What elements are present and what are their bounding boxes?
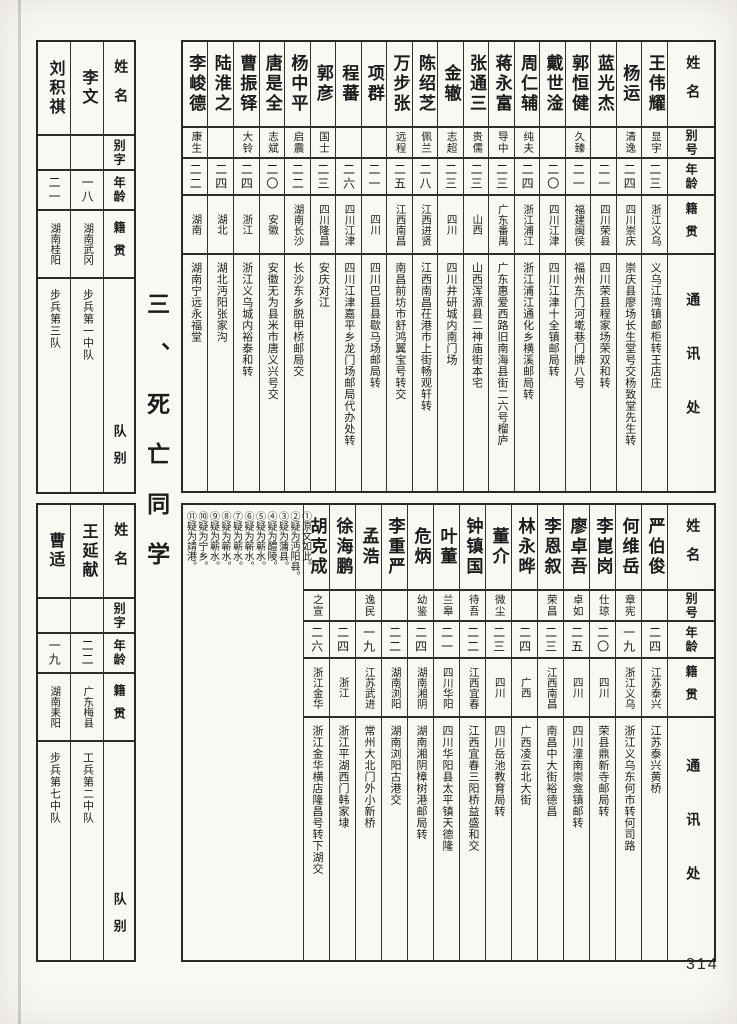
address-cell: 广东惠爱西路旧南海县街二六号榴庐 (489, 255, 514, 491)
age-cell: 二四 (208, 159, 233, 196)
name-cell: 刘积祺 (38, 42, 70, 136)
age-cell-text: 二五 (569, 626, 583, 654)
alias-cell-text: 启震 (291, 131, 303, 154)
age-cell-text: 二四 (239, 163, 253, 191)
age-cell: 二二 (71, 634, 103, 674)
alias-cell-text: 兰皋 (440, 594, 452, 617)
origin-cell: 广西 (512, 659, 537, 718)
header-name-text: 姓名 (111, 59, 128, 117)
footnote: ⑦疑为蕲水。 (230, 511, 241, 643)
age-cell-text: 二四 (517, 626, 531, 654)
name-cell-text: 何维岳 (618, 517, 638, 577)
name-cell: 郭恒健 (566, 42, 591, 128)
name-cell-text: 李峻德 (185, 54, 205, 114)
name-cell: 杨运 (617, 42, 642, 128)
name-cell: 蓝光杰 (591, 42, 616, 128)
person-column: 林永晔二四广西广西凌云北大街 (511, 505, 537, 960)
age-cell: 二〇 (260, 159, 285, 196)
address-cell: 安徽无为县米市唐义兴号交 (260, 255, 285, 491)
alias-cell (38, 136, 70, 171)
address-cell: 长沙东乡脱甲桥邮局交 (285, 255, 310, 491)
alias-cell-text: 章宪 (622, 594, 634, 617)
main-roster-table-top: 姓名别号年龄籍贯通讯处王伟耀显宇二三浙江义乌义乌江湾镇邮柜转王店庄杨运清逸二四四… (181, 40, 716, 493)
origin-cell-text: 江西进贤 (419, 204, 431, 246)
address-cell-text: 四川荣县程家场荣双和转 (597, 262, 610, 389)
name-cell: 胡克成 (304, 505, 329, 591)
age-cell: 二一 (591, 159, 616, 196)
header-column: 姓名别字年龄籍贯队别 (103, 42, 134, 492)
alias-cell (540, 128, 565, 159)
name-cell: 王延献 (71, 505, 103, 599)
origin-cell: 广东梅县 (71, 674, 103, 742)
page-number: 314 (686, 956, 719, 974)
alias-cell (591, 128, 616, 159)
alias-cell-text: 康生 (189, 131, 201, 154)
alias-cell-text: 之宣 (310, 594, 322, 617)
address-cell-text: 湖北沔阳张家沟 (214, 262, 227, 343)
alias-cell-text: 待吾 (466, 594, 478, 617)
address-cell-text: 崇庆县廖场长生堂号交杨致堂先生转 (623, 262, 636, 446)
name-cell: 蒋永富 (489, 42, 514, 128)
unit-cell-text: 步兵第七中队 (48, 752, 61, 824)
alias-cell: 章宪 (616, 591, 641, 622)
person-column: 叶董兰皋二一四川华阳四川华阳县太平镇天德隆 (433, 505, 459, 960)
name-cell-text: 万步张 (389, 54, 409, 114)
address-cell: 四川岳池教育局转 (486, 718, 511, 960)
name-cell: 陆淮之 (208, 42, 233, 128)
age-cell: 二三 (486, 622, 511, 659)
age-cell-text: 二二 (387, 626, 401, 654)
origin-cell-text: 山西 (470, 214, 482, 235)
address-cell-text: 四川江津嘉平乡龙门场邮局代办处转 (342, 262, 355, 446)
address-cell-text: 义乌江湾镇邮柜转王店庄 (648, 262, 661, 389)
person-column: 蓝光杰二一四川荣县四川荣县程家场荣双和转 (590, 42, 616, 491)
name-cell-text: 刘积祺 (45, 60, 64, 117)
footnote: ⑥疑为蕲水。 (242, 511, 253, 643)
age-cell-text: 二五 (392, 163, 406, 191)
person-column: 项群二一四川四川巴县县歇马场邮局转 (361, 42, 387, 491)
unit-cell-text: 工兵第二中队 (81, 752, 94, 824)
name-cell: 张通三 (464, 42, 489, 128)
address-cell-text: 江西宜春三阳桥益盛和交 (466, 725, 479, 852)
header-address-text: 通讯处 (683, 758, 700, 920)
age-cell-text: 二三 (316, 163, 330, 191)
name-cell-text: 曹适 (45, 532, 64, 570)
age-cell: 二一 (38, 171, 70, 211)
person-column: 胡克成之宣二六浙江金华浙江金华横店隆昌号转下湖交 (303, 505, 329, 960)
address-cell: 山西浑源县二神庙街本宅 (464, 255, 489, 491)
header-age: 年龄 (104, 634, 134, 674)
person-column: 金辙志超二三四川四川井研城内南门场 (437, 42, 463, 491)
origin-cell-text: 四川 (368, 214, 380, 235)
age-cell: 二二 (460, 622, 485, 659)
name-cell-text: 周仁辅 (517, 54, 537, 114)
header-name: 姓名 (668, 42, 714, 128)
name-cell: 程蕃 (336, 42, 361, 128)
person-column: 孟浩逸民一九江苏武进常州大北门外小新桥 (355, 505, 381, 960)
alias-cell-text: 卓如 (570, 594, 582, 617)
address-cell: 浙江义乌城内裕泰和转 (234, 255, 259, 491)
age-cell: 二一 (362, 159, 387, 196)
alias-cell (71, 136, 103, 171)
side-roster-table-bottom: 姓名别字年龄籍贯队别王延献二二广东梅县工兵第二中队曹适一九湖南耒阳步兵第七中队 (36, 503, 136, 962)
header-name: 姓名 (104, 42, 134, 136)
name-cell-text: 李恩叙 (540, 517, 560, 577)
address-cell: 湖北沔阳张家沟 (208, 255, 233, 491)
age-cell: 二三 (538, 622, 563, 659)
alias-cell: 大铃 (234, 128, 259, 159)
age-cell: 二二 (183, 159, 208, 196)
alias-cell: 清逸 (617, 128, 642, 159)
person-column: 蒋永富导中二三广东番禺广东惠爱西路旧南海县街二六号榴庐 (488, 42, 514, 491)
name-cell: 徐海鹏 (330, 505, 355, 591)
age-cell: 二四 (642, 622, 667, 659)
age-cell: 二三 (438, 159, 463, 196)
address-cell-text: 四川巴县县歇马场邮局转 (367, 262, 380, 389)
person-column: 严伯俊二四江苏泰兴江苏泰兴黄桥 (641, 505, 667, 960)
alias-cell: 逸民 (356, 591, 381, 622)
age-cell: 二〇 (540, 159, 565, 196)
unit-cell: 工兵第二中队 (71, 742, 103, 960)
origin-cell: 四川江津 (540, 196, 565, 255)
header-age-text: 年龄 (684, 163, 698, 191)
origin-cell: 湖南浏阳 (382, 659, 407, 718)
alias-cell: 贵儒 (464, 128, 489, 159)
name-cell: 何维岳 (616, 505, 641, 591)
address-cell: 南昌前坊市舒鸿翼宝号转交 (387, 255, 412, 491)
name-cell: 严伯俊 (642, 505, 667, 591)
alias-cell-text: 久臻 (572, 131, 584, 154)
name-cell-text: 严伯俊 (644, 517, 664, 577)
name-cell-text: 郭彦 (313, 64, 333, 104)
alias-cell: 启震 (285, 128, 310, 159)
origin-cell-text: 四川 (596, 677, 608, 698)
header-alias: 别号 (668, 128, 714, 159)
person-column: 廖卓吾卓如二五四川四川潼南崇龛镇邮转 (563, 505, 589, 960)
origin-cell-text: 湖南长沙 (291, 204, 303, 246)
person-column: 郭彦国士二三四川隆昌安庆对江 (310, 42, 336, 491)
age-cell: 二〇 (590, 622, 615, 659)
address-cell: 四川荣县程家场荣双和转 (591, 255, 616, 491)
alias-cell (38, 599, 70, 634)
alias-cell (71, 599, 103, 634)
origin-cell: 浙江义乌 (616, 659, 641, 718)
name-cell-text: 张通三 (466, 54, 486, 114)
age-cell-text: 二四 (647, 626, 661, 654)
origin-cell-text: 四川江津 (342, 204, 354, 246)
origin-cell: 湖南武冈 (71, 211, 103, 279)
address-cell-text: 四川井研城内南门场 (444, 262, 457, 366)
header-address: 通讯处 (668, 255, 714, 491)
origin-cell: 四川隆昌 (311, 196, 336, 255)
origin-cell-text: 浙江 (336, 677, 348, 698)
name-cell-text: 郭恒健 (568, 54, 588, 114)
header-name-text: 姓名 (683, 55, 700, 113)
header-alias-text: 别字 (112, 139, 126, 167)
footnote: ③疑为蒲县。 (276, 511, 287, 643)
age-cell-text: 二三 (491, 626, 505, 654)
address-cell: 湖南浏阳古港交 (382, 718, 407, 960)
origin-cell: 四川江津 (336, 196, 361, 255)
name-cell-text: 危炳 (410, 527, 430, 567)
alias-cell-text: 大铃 (240, 131, 252, 154)
origin-cell: 四川 (362, 196, 387, 255)
footnote: ⑩疑为宁乡。 (196, 511, 207, 643)
name-cell: 曹振铎 (234, 42, 259, 128)
age-cell: 二八 (413, 159, 438, 196)
origin-cell: 湖南桂阳 (38, 211, 70, 279)
person-column: 曹振铎大铃二四浙江浙江义乌城内裕泰和转 (233, 42, 259, 491)
address-cell-text: 安徽无为县米市唐义兴号交 (265, 262, 278, 400)
age-cell-text: 二四 (214, 163, 228, 191)
person-column: 王伟耀显宇二三浙江义乌义乌江湾镇邮柜转王店庄 (641, 42, 667, 491)
age-cell-text: 二〇 (265, 163, 279, 191)
age-cell-text: 二三 (543, 626, 557, 654)
origin-cell: 湖南耒阳 (38, 674, 70, 742)
alias-cell-text: 清逸 (623, 131, 635, 154)
address-cell-text: 长沙东乡脱甲桥邮局交 (291, 262, 304, 377)
address-cell: 四川华阳县太平镇天德隆 (434, 718, 459, 960)
alias-cell: 导中 (489, 128, 514, 159)
name-cell-text: 董介 (488, 527, 508, 567)
address-cell: 南昌中大街裕德昌 (538, 718, 563, 960)
address-cell: 浙江义乌东何市转何司路 (616, 718, 641, 960)
name-cell: 曹适 (38, 505, 70, 599)
age-cell: 二六 (336, 159, 361, 196)
person-column: 杨运清逸二四四川崇庆崇庆县廖场长生堂号交杨致堂先生转 (616, 42, 642, 491)
alias-cell: 荣昌 (538, 591, 563, 622)
person-column: 钟镇国待吾二二江西宜春江西宜春三阳桥益盛和交 (459, 505, 485, 960)
origin-cell-text: 浙江义乌 (649, 204, 661, 246)
alias-cell-text: 贵儒 (470, 131, 482, 154)
unit-cell-text: 步兵第三队 (48, 289, 61, 349)
name-cell-text: 杨运 (619, 64, 639, 104)
age-cell: 二五 (564, 622, 589, 659)
age-cell-text: 二〇 (546, 163, 560, 191)
header-alias: 别号 (668, 591, 714, 622)
header-column: 姓名别号年龄籍贯通讯处 (667, 42, 714, 491)
name-cell: 郭彦 (311, 42, 336, 128)
age-cell: 一九 (356, 622, 381, 659)
person-column: 王延献二二广东梅县工兵第二中队 (70, 505, 103, 960)
age-cell: 二四 (512, 622, 537, 659)
origin-cell-text: 湖南桂阳 (48, 223, 60, 265)
name-cell: 李峻德 (183, 42, 208, 128)
name-cell-text: 程蕃 (338, 64, 358, 104)
alias-cell: 幼鉴 (408, 591, 433, 622)
name-cell-text: 李崑岗 (592, 517, 612, 577)
header-alias: 别字 (104, 599, 134, 634)
person-column: 万步张远程二五江西南昌南昌前坊市舒鸿翼宝号转交 (386, 42, 412, 491)
address-cell: 四川巴县县歇马场邮局转 (362, 255, 387, 491)
header-origin: 籍贯 (668, 196, 714, 255)
age-cell: 二三 (642, 159, 667, 196)
alias-cell: 佩兰 (413, 128, 438, 159)
address-cell: 湖南宁远永福堂 (183, 255, 208, 491)
address-cell-text: 常州大北门外小新桥 (362, 725, 375, 829)
age-cell-text: 二二 (290, 163, 304, 191)
origin-cell-text: 浙江 (240, 214, 252, 235)
name-cell: 叶董 (434, 505, 459, 591)
origin-cell-text: 湖南 (189, 214, 201, 235)
origin-cell-text: 浙江浦江 (521, 204, 533, 246)
address-cell-text: 浙江义乌东何市转何司路 (622, 725, 635, 852)
name-cell-text: 唐是全 (262, 54, 282, 114)
origin-cell-text: 四川华阳 (440, 667, 452, 709)
header-age: 年龄 (668, 159, 714, 196)
address-cell-text: 四川华阳县太平镇天德隆 (440, 725, 453, 852)
name-cell-text: 金辙 (440, 64, 460, 104)
header-address: 通讯处 (668, 718, 714, 960)
age-cell: 一九 (38, 634, 70, 674)
alias-cell: 志斌 (260, 128, 285, 159)
footnote: ②疑为沔阳县。 (288, 511, 299, 643)
address-cell-text: 山西浑源县二神庙街本宅 (470, 262, 483, 389)
origin-cell: 四川 (590, 659, 615, 718)
name-cell-text: 蒋永富 (492, 54, 512, 114)
header-origin: 籍贯 (104, 211, 134, 279)
section-title: 三、死亡同学 (131, 292, 181, 692)
age-cell: 二四 (330, 622, 355, 659)
person-column: 唐是全志斌二〇安徽安徽无为县米市唐义兴号交 (259, 42, 285, 491)
header-name-text: 姓名 (111, 522, 128, 580)
age-cell-text: 二二 (188, 163, 202, 191)
address-cell: 江西宜春三阳桥益盛和交 (460, 718, 485, 960)
name-cell-text: 项群 (364, 64, 384, 104)
person-column: 张通三贵儒二三山西山西浑源县二神庙街本宅 (463, 42, 489, 491)
address-cell-text: 湖南宁远永福堂 (189, 262, 202, 343)
section-title-text: 三、死亡同学 (142, 292, 169, 692)
name-cell-text: 叶董 (436, 527, 456, 567)
header-origin: 籍贯 (668, 659, 714, 718)
address-cell: 四川江津十全镇邮局转 (540, 255, 565, 491)
alias-cell: 兰皋 (434, 591, 459, 622)
alias-cell: 卓如 (564, 591, 589, 622)
name-cell-text: 杨中平 (287, 54, 307, 114)
alias-cell: 纯夫 (515, 128, 540, 159)
origin-cell-text: 福建闽侯 (572, 204, 584, 246)
origin-cell-text: 四川 (570, 677, 582, 698)
address-cell-text: 安庆对江 (316, 262, 329, 308)
scan-edge-shadow (18, 0, 21, 1024)
origin-cell-text: 江苏泰兴 (648, 667, 660, 709)
origin-cell-text: 湖南湘阴 (414, 667, 426, 709)
person-column: 何维岳章宪一九浙江义乌浙江义乌东何市转何司路 (615, 505, 641, 960)
person-column: 李重严二二湖南浏阳湖南浏阳古港交 (381, 505, 407, 960)
age-cell-text: 二二 (465, 626, 479, 654)
origin-cell: 浙江义乌 (642, 196, 667, 255)
address-cell-text: 湖南浏阳古港交 (388, 725, 401, 806)
address-cell-text: 四川岳池教育局转 (492, 725, 505, 817)
alias-cell: 待吾 (460, 591, 485, 622)
alias-cell: 久臻 (566, 128, 591, 159)
name-cell: 陈绍芝 (413, 42, 438, 128)
age-cell: 二四 (617, 159, 642, 196)
person-column: 危炳幼鉴二四湖南湘阴湖南湘阴樟树港邮局转 (407, 505, 433, 960)
footnote: ⑪疑为靖港。 (184, 511, 195, 643)
person-column: 李恩叙荣昌二三江西南昌南昌中大街裕德昌 (537, 505, 563, 960)
age-cell: 二三 (489, 159, 514, 196)
name-cell-text: 孟浩 (358, 527, 378, 567)
header-alias-text: 别号 (684, 129, 698, 157)
name-cell: 戴世淦 (540, 42, 565, 128)
person-column: 李文一八湖南武冈步兵第一中队 (70, 42, 103, 492)
origin-cell: 江苏泰兴 (642, 659, 667, 718)
alias-cell-text: 仕琼 (596, 594, 608, 617)
name-cell-text: 曹振铎 (236, 54, 256, 114)
age-cell: 二六 (304, 622, 329, 659)
name-cell: 李恩叙 (538, 505, 563, 591)
scanned-page: 姓名别字年龄籍贯队别李文一八湖南武冈步兵第一中队刘积祺二一湖南桂阳步兵第三队 姓… (0, 0, 737, 1024)
footnote: ⑤疑为蕲水。 (253, 511, 264, 643)
name-cell: 李重严 (382, 505, 407, 591)
age-cell-text: 二四 (335, 626, 349, 654)
header-unit-text: 队别 (111, 892, 126, 946)
alias-cell (336, 128, 361, 159)
origin-cell-text: 四川 (444, 214, 456, 235)
age-cell-text: 二一 (439, 626, 453, 654)
origin-cell-text: 广东梅县 (81, 686, 93, 728)
header-unit-text: 队别 (111, 424, 126, 478)
alias-cell: 之宣 (304, 591, 329, 622)
age-cell-text: 一八 (80, 176, 94, 204)
person-column: 程蕃二六四川江津四川江津嘉平乡龙门场邮局代办处转 (335, 42, 361, 491)
age-cell-text: 二三 (494, 163, 508, 191)
name-cell: 项群 (362, 42, 387, 128)
alias-cell (642, 591, 667, 622)
origin-cell: 江苏武进 (356, 659, 381, 718)
person-column: 杨中平启震二二湖南长沙长沙东乡脱甲桥邮局交 (284, 42, 310, 491)
origin-cell: 浙江 (234, 196, 259, 255)
alias-cell-text: 逸民 (362, 594, 374, 617)
header-origin-text: 籍贯 (112, 684, 126, 730)
alias-cell-text: 导中 (495, 131, 507, 154)
name-cell-text: 蓝光杰 (594, 54, 614, 114)
origin-cell-text: 四川荣县 (597, 204, 609, 246)
origin-cell: 江西南昌 (538, 659, 563, 718)
age-cell-text: 二四 (413, 626, 427, 654)
age-cell-text: 一九 (621, 626, 635, 654)
footnote: ⑧疑为蕲水。 (219, 511, 230, 643)
unit-cell: 步兵第七中队 (38, 742, 70, 960)
origin-cell-text: 湖南武冈 (81, 223, 93, 265)
address-cell-text: 福州东门河墘巷门牌八号 (572, 262, 585, 389)
alias-cell: 康生 (183, 128, 208, 159)
alias-cell: 志超 (438, 128, 463, 159)
person-column: 李峻德康生二二湖南湖南宁远永福堂 (183, 42, 208, 491)
address-cell: 浙江金华横店隆昌号转下湖交 (304, 718, 329, 960)
origin-cell: 四川 (486, 659, 511, 718)
age-cell: 二三 (311, 159, 336, 196)
footnote: ④疑为醴陵。 (265, 511, 276, 643)
name-cell-text: 李重严 (384, 517, 404, 577)
person-column: 徐海鹏二四浙江浙江平湖西门韩家埭 (329, 505, 355, 960)
header-origin-text: 籍贯 (112, 221, 126, 267)
header-origin-text: 籍贯 (684, 202, 698, 248)
address-cell: 常州大北门外小新桥 (356, 718, 381, 960)
footnote: ⑨疑为蕲水。 (207, 511, 218, 643)
name-cell-text: 李文 (78, 69, 97, 107)
footnotes-block: ①原文如此。②疑为沔阳县。③疑为蒲县。④疑为醴陵。⑤疑为蕲水。⑥疑为蕲水。⑦疑为… (183, 505, 319, 643)
origin-cell: 安徽 (260, 196, 285, 255)
alias-cell-text: 志超 (444, 131, 456, 154)
person-column: 郭恒健久臻二一福建闽侯福州东门河墘巷门牌八号 (565, 42, 591, 491)
unit-cell: 步兵第一中队 (71, 279, 103, 492)
alias-cell-text: 国士 (317, 131, 329, 154)
header-address-text: 通讯处 (683, 292, 700, 454)
unit-cell: 步兵第三队 (38, 279, 70, 492)
header-age-text: 年龄 (112, 176, 126, 204)
